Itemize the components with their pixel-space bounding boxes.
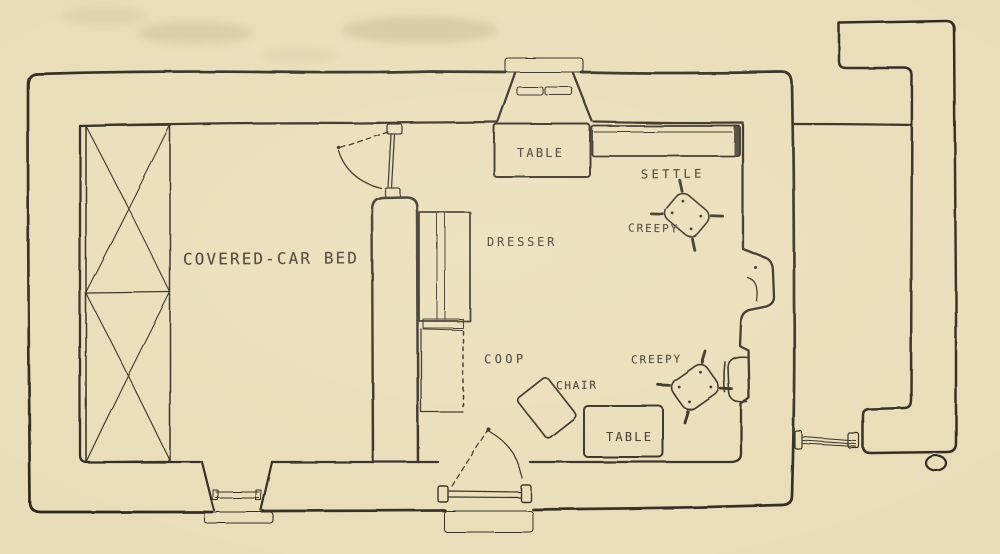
bed-divider: [86, 292, 170, 293]
top-window: [498, 58, 592, 121]
door-hinge-block-bottom: [385, 188, 400, 197]
window-sill-outer: [505, 58, 583, 72]
covered-car-bed: [86, 125, 170, 462]
paper-stains: [63, 7, 498, 63]
door-leaf-closed: [388, 134, 395, 188]
settle: [592, 125, 740, 156]
outer-wall-top-left: [36, 72, 505, 75]
bed-outline: [86, 125, 170, 462]
outer-wall-east: [781, 84, 794, 505]
window-jamb-right: [261, 462, 272, 510]
label-table-top: TABLE: [517, 147, 564, 159]
yard-l-wall: [839, 21, 956, 453]
entrance-door: [438, 427, 533, 532]
door-leaf-closed: [449, 491, 520, 498]
door-leaf-open-dashed: [340, 132, 388, 148]
outer-wall-bottom-east: [533, 505, 781, 510]
bed-cross-lower: [86, 292, 170, 462]
yard-gate: [795, 431, 859, 449]
bottom-window: [202, 462, 273, 523]
label-settle: SETTLE: [641, 168, 705, 181]
stool-legs: [651, 180, 722, 250]
outer-wall-bottom-mid: [263, 511, 445, 512]
label-covered-car-bed: COVERED-CAR BED: [183, 250, 359, 267]
window-jamb-left: [498, 73, 515, 121]
gate-post: [795, 431, 802, 449]
door-swing-arc: [489, 431, 522, 478]
label-coop: COOP: [484, 353, 527, 366]
stool-seat: [668, 361, 722, 413]
door-swing-arc: [339, 151, 381, 188]
yard-north-wall-line: [794, 124, 912, 125]
niche-pivot-dot: [755, 267, 758, 270]
window-glass-right: [545, 87, 572, 95]
outer-wall-west: [28, 74, 36, 502]
label-creepy-top: CREEPY: [628, 223, 679, 235]
window-jamb-left: [202, 462, 214, 510]
corner-post-oval: [926, 456, 946, 471]
niche-recess-outline: [728, 357, 747, 403]
bed-cross-upper: [86, 125, 170, 292]
window-jamb-right: [573, 73, 592, 121]
label-table-bottom: TABLE: [606, 431, 653, 443]
label-creepy-bottom: CREEPY: [631, 353, 682, 365]
door-jamb-block-left: [438, 486, 448, 502]
door-hinge-block-top: [387, 124, 402, 134]
door-step-outer: [444, 511, 533, 532]
coop-solid-edges: [421, 329, 463, 412]
east-wall-niche-lower: [724, 357, 747, 403]
label-chair: CHAIR: [556, 380, 598, 392]
floor-plan-page: COVERED-CAR BED TABLE SETTLE CREEPY DRES…: [0, 0, 1000, 554]
settle-outline: [592, 126, 740, 156]
outer-wall-bottom-west: [30, 502, 212, 512]
window-sill-outer: [204, 512, 273, 523]
coop-top-edge: [423, 329, 462, 330]
inner-wall-east-with-niches: [732, 123, 774, 462]
door-jamb-block-right: [521, 485, 531, 502]
floor-plan-drawing: [0, 0, 1000, 554]
niche-swing-arc: [748, 278, 758, 301]
partition-wall: [372, 197, 418, 462]
coop: [421, 329, 463, 412]
creepy-stool-top: [651, 180, 722, 250]
dresser: [419, 212, 470, 328]
label-dresser: DRESSER: [487, 236, 557, 248]
door-leaf-open-dashed: [452, 431, 487, 486]
door-pivot-dot: [486, 427, 490, 431]
inner-wall-top-kitchen: [594, 122, 743, 123]
dresser-front-lines: [437, 212, 445, 321]
window-glass-left: [517, 87, 543, 95]
settle-end-cap: [734, 125, 740, 156]
window-glass-lines: [216, 492, 259, 498]
east-wall-niche-upper: [748, 267, 758, 302]
bedroom-door: [337, 124, 402, 197]
outer-wall-top-right: [581, 72, 792, 84]
door-leaf-tip-dot: [337, 146, 340, 149]
